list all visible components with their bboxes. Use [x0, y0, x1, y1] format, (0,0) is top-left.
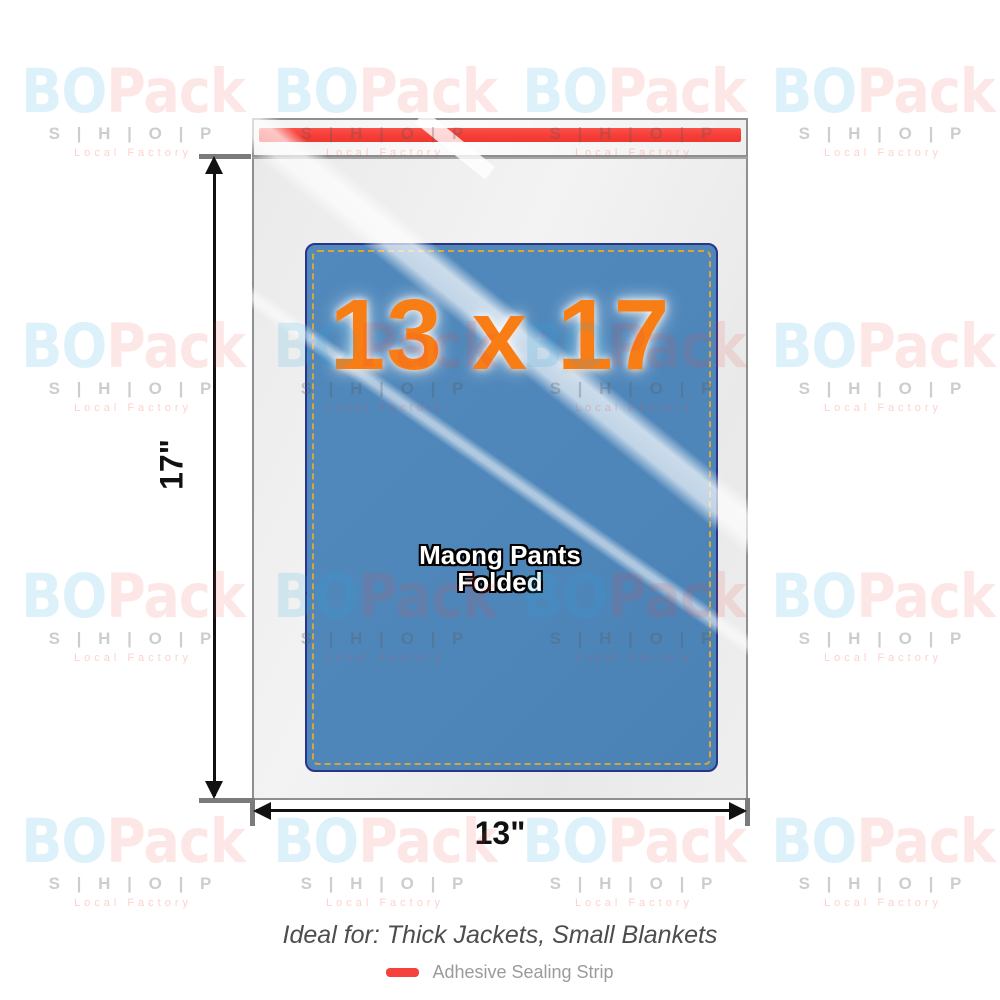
watermark-brand-bo: BO	[21, 56, 106, 127]
watermark-tile: BOPack S | H | O | P Local Factory	[771, 320, 995, 414]
watermark-brand-bo: BO	[273, 56, 358, 127]
height-arrow-down-icon	[205, 781, 223, 799]
watermark-brand-pack: Pack	[856, 311, 995, 382]
contents-description-line1: Maong Pants	[252, 542, 748, 569]
watermark-brand-bo: BO	[522, 56, 607, 127]
watermark-shop-text: S | H | O | P	[21, 874, 245, 894]
watermark-brand-pack: Pack	[106, 56, 245, 127]
watermark-shop-text: S | H | O | P	[522, 874, 746, 894]
watermark-brand-bo: BO	[21, 806, 106, 877]
watermark-brand-pack: Pack	[106, 311, 245, 382]
watermark-tile: BOPack S | H | O | P Local Factory	[21, 815, 245, 909]
contents-description-line2: Folded	[252, 569, 748, 596]
height-dimension-line	[213, 160, 216, 796]
watermark-tagline: Local Factory	[21, 402, 245, 414]
watermark-tagline: Local Factory	[771, 897, 995, 909]
watermark-brand-pack: Pack	[607, 806, 746, 877]
watermark-tile: BOPack S | H | O | P Local Factory	[771, 815, 995, 909]
watermark-brand-pack: Pack	[358, 56, 497, 127]
watermark-shop-text: S | H | O | P	[771, 379, 995, 399]
bag-flap	[252, 118, 748, 157]
watermark-shop-text: S | H | O | P	[273, 874, 497, 894]
watermark-brand-logo: BOPack	[522, 62, 746, 122]
legend-label: Adhesive Sealing Strip	[432, 962, 613, 983]
width-dimension-line	[256, 809, 744, 812]
width-arrow-right-icon	[729, 802, 747, 820]
watermark-tile: BOPack S | H | O | P Local Factory	[21, 65, 245, 159]
height-arrow-up-icon	[205, 156, 223, 174]
adhesive-sealing-strip	[259, 128, 741, 142]
watermark-brand-bo: BO	[771, 806, 856, 877]
watermark-brand-logo: BOPack	[21, 812, 245, 872]
watermark-shop-text: S | H | O | P	[771, 629, 995, 649]
watermark-tagline: Local Factory	[21, 652, 245, 664]
legend: Adhesive Sealing Strip	[0, 962, 1000, 983]
product-illustration: 13 x 17 Maong Pants Folded 17" 13" Ideal…	[0, 0, 1000, 1000]
watermark-tile: BOPack S | H | O | P Local Factory	[771, 65, 995, 159]
adhesive-strip-icon	[386, 968, 419, 977]
watermark-brand-logo: BOPack	[21, 62, 245, 122]
watermark-brand-pack: Pack	[106, 561, 245, 632]
watermark-brand-logo: BOPack	[21, 317, 245, 377]
watermark-tile: BOPack S | H | O | P Local Factory	[771, 570, 995, 664]
watermark-tagline: Local Factory	[273, 897, 497, 909]
watermark-brand-pack: Pack	[856, 561, 995, 632]
watermark-shop-text: S | H | O | P	[21, 124, 245, 144]
watermark-shop-text: S | H | O | P	[771, 124, 995, 144]
watermark-shop-text: S | H | O | P	[21, 379, 245, 399]
watermark-tagline: Local Factory	[522, 897, 746, 909]
poly-bag: 13 x 17 Maong Pants Folded	[252, 118, 748, 800]
watermark-tile: BOPack S | H | O | P Local Factory	[21, 320, 245, 414]
watermark-brand-bo: BO	[771, 561, 856, 632]
watermark-brand-logo: BOPack	[771, 812, 995, 872]
watermark-brand-logo: BOPack	[21, 567, 245, 627]
watermark-brand-bo: BO	[771, 56, 856, 127]
watermark-brand-logo: BOPack	[771, 567, 995, 627]
watermark-tagline: Local Factory	[771, 402, 995, 414]
watermark-brand-logo: BOPack	[771, 317, 995, 377]
watermark-brand-bo: BO	[21, 311, 106, 382]
contents-description-label: Maong Pants Folded	[252, 542, 748, 597]
bag-size-label: 13 x 17	[252, 278, 748, 393]
watermark-tagline: Local Factory	[21, 897, 245, 909]
watermark-brand-bo: BO	[21, 561, 106, 632]
watermark-brand-pack: Pack	[607, 56, 746, 127]
watermark-tagline: Local Factory	[771, 652, 995, 664]
watermark-tagline: Local Factory	[771, 147, 995, 159]
watermark-brand-bo: BO	[771, 311, 856, 382]
watermark-brand-logo: BOPack	[273, 62, 497, 122]
watermark-brand-pack: Pack	[106, 806, 245, 877]
watermark-brand-pack: Pack	[856, 806, 995, 877]
watermark-brand-pack: Pack	[856, 56, 995, 127]
watermark-brand-logo: BOPack	[771, 62, 995, 122]
watermark-shop-text: S | H | O | P	[771, 874, 995, 894]
watermark-shop-text: S | H | O | P	[21, 629, 245, 649]
height-dimension-label: 17"	[154, 425, 191, 505]
watermark-tile: BOPack S | H | O | P Local Factory	[21, 570, 245, 664]
width-arrow-left-icon	[253, 802, 271, 820]
width-dimension-label: 13"	[400, 815, 600, 852]
ideal-for-text: Ideal for: Thick Jackets, Small Blankets	[0, 921, 1000, 950]
watermark-brand-bo: BO	[273, 806, 358, 877]
